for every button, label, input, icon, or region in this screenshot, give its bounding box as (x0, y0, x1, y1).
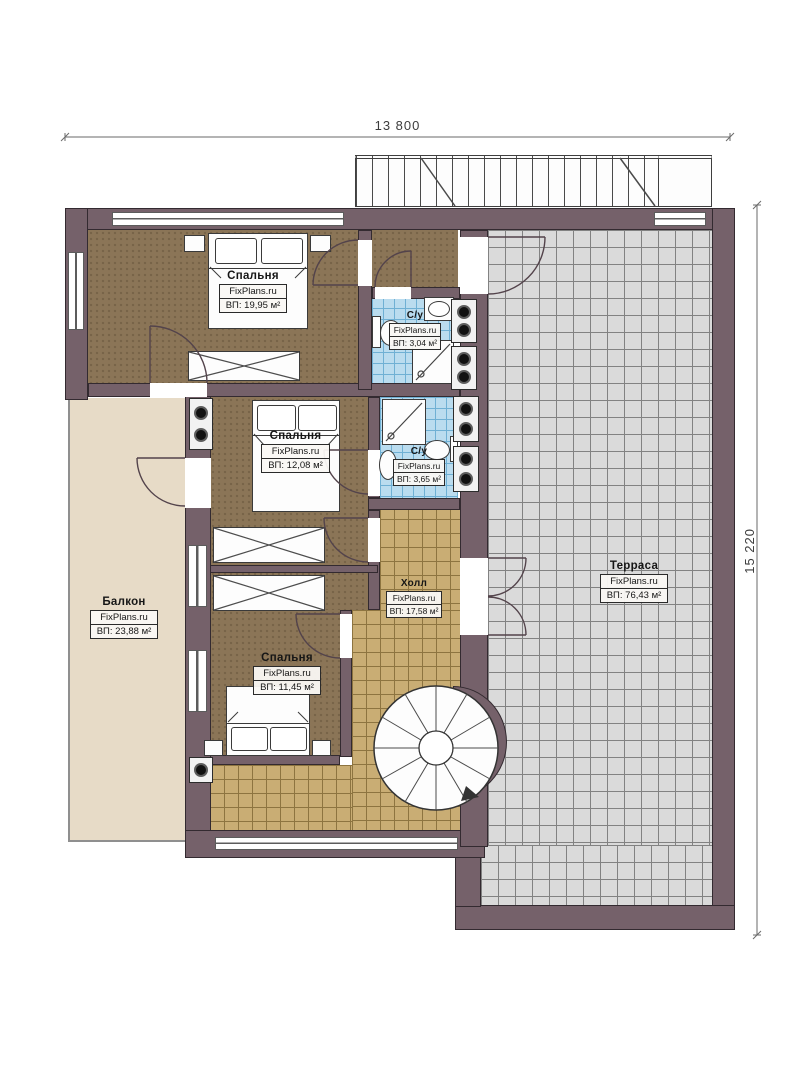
wall-bedroom3-south (210, 755, 340, 765)
label-balcony: Балкон FixPlans.ru ВП: 23,88 м² (70, 596, 178, 639)
room-area: ВП: 3,04 м² (390, 337, 440, 349)
bed-3 (226, 686, 310, 756)
pillow (298, 405, 337, 431)
hall-floor-main (352, 610, 460, 832)
nightstand (184, 235, 205, 252)
room-area: ВП: 23,88 м² (91, 625, 158, 638)
door-opening-bathroom2 (368, 450, 380, 496)
blanket-line (227, 723, 309, 724)
vent-circles (451, 299, 477, 343)
wardrobe-bedroom1 (188, 351, 300, 381)
vent-dot (194, 428, 208, 442)
pillow (261, 238, 303, 264)
wall-wardrobe-divider (210, 565, 378, 573)
pillow (270, 727, 307, 751)
pergola-end (658, 155, 712, 207)
vent-circles (189, 398, 213, 450)
room-name: Балкон (70, 596, 178, 608)
blanket-line (209, 268, 307, 269)
nightstand (204, 740, 223, 756)
room-area: ВП: 19,95 м² (220, 299, 287, 312)
pergola-slats (355, 155, 660, 207)
pillow (257, 405, 296, 431)
label-bedroom-2: Спальня FixPlans.ru ВП: 12,08 м² (238, 430, 353, 473)
room-name: Спальня (238, 430, 353, 442)
wardrobe-bedroom3 (213, 575, 325, 611)
label-bedroom-3: Спальня FixPlans.ru ВП: 11,45 м² (232, 652, 342, 695)
label-terrace: Терраса FixPlans.ru ВП: 76,43 м² (578, 560, 690, 603)
door-opening-bathroom1 (375, 287, 411, 299)
door-opening-terrace-french (460, 558, 488, 635)
window-left-wall (68, 252, 84, 330)
room-site: FixPlans.ru (387, 592, 442, 605)
room-label-box: FixPlans.ru ВП: 3,04 м² (389, 323, 441, 350)
room-site: FixPlans.ru (601, 575, 668, 589)
vent-circles (189, 757, 213, 783)
vent-dot (459, 402, 473, 416)
room-site: FixPlans.ru (91, 611, 158, 625)
room-name: С/у (378, 310, 452, 321)
room-site: FixPlans.ru (254, 667, 320, 681)
door-opening-bedroom2 (368, 518, 380, 562)
door-opening-balcony (185, 458, 211, 508)
dimension-top: 13 800 (65, 118, 730, 133)
window-bottom-band (215, 837, 458, 850)
floor-plan: 13 800 15 220 (0, 0, 792, 1080)
label-bathroom-2: С/у FixPlans.ru ВП: 3,65 м² (380, 446, 458, 487)
room-area: ВП: 11,45 м² (254, 681, 320, 694)
terrace-floor-bottom (481, 845, 712, 905)
nightstand (312, 740, 331, 756)
label-bedroom-1: Спальня FixPlans.ru ВП: 19,95 м² (196, 270, 310, 313)
vent-circles (451, 346, 477, 390)
room-name: Спальня (196, 270, 310, 282)
room-name: Спальня (232, 652, 342, 664)
room-site: FixPlans.ru (220, 285, 287, 299)
vestibule-floor (372, 230, 458, 290)
room-label-box: FixPlans.ru ВП: 17,58 м² (386, 591, 443, 618)
wall-terrace-bottom (455, 905, 735, 930)
door-opening-terrace-top (460, 237, 488, 294)
room-name: Терраса (578, 560, 690, 572)
door-opening-vestibule (358, 240, 372, 286)
room-label-box: FixPlans.ru ВП: 12,08 м² (261, 444, 330, 473)
wall-bathroom2-south (368, 498, 460, 510)
vent-dot (459, 472, 473, 486)
room-label-box: FixPlans.ru ВП: 3,65 м² (393, 459, 445, 486)
pillow (231, 727, 268, 751)
window-terrace-top (654, 212, 706, 226)
room-site: FixPlans.ru (390, 324, 440, 337)
hall-floor-lower (210, 765, 352, 832)
window-balcony-1 (188, 545, 207, 607)
label-hall: Холл FixPlans.ru ВП: 17,58 м² (368, 578, 460, 619)
room-name: Холл (368, 578, 460, 589)
room-area: ВП: 17,58 м² (387, 605, 442, 617)
vent-dot (457, 352, 471, 366)
room-name: С/у (380, 446, 458, 457)
vent-dot (194, 406, 208, 420)
room-label-box: FixPlans.ru ВП: 23,88 м² (90, 610, 159, 639)
wardrobe-bedroom2 (213, 527, 325, 563)
room-site: FixPlans.ru (262, 445, 329, 459)
vent-dot (457, 305, 471, 319)
pillow (215, 238, 257, 264)
dimension-right: 15 220 (742, 528, 757, 574)
label-bathroom-1: С/у FixPlans.ru ВП: 3,04 м² (378, 310, 452, 351)
vent-circles (453, 396, 479, 442)
shower-corner-2 (382, 399, 426, 445)
room-label-box: FixPlans.ru ВП: 11,45 м² (253, 666, 321, 695)
vent-dot (457, 370, 471, 384)
vent-dot (459, 452, 473, 466)
room-label-box: FixPlans.ru ВП: 76,43 м² (600, 574, 669, 603)
room-area: ВП: 12,08 м² (262, 459, 329, 472)
room-site: FixPlans.ru (394, 460, 444, 473)
vent-dot (457, 323, 471, 337)
wall-terrace-right (712, 208, 735, 930)
room-area: ВП: 3,65 м² (394, 473, 444, 485)
vent-dot (194, 763, 208, 777)
vent-dot (459, 422, 473, 436)
window-balcony-2 (188, 650, 207, 712)
nightstand (310, 235, 331, 252)
door-opening-bedroom1 (150, 383, 207, 397)
wall-bedroom1-south (88, 383, 460, 397)
window-bedroom1 (112, 212, 344, 226)
room-area: ВП: 76,43 м² (601, 589, 668, 602)
room-label-box: FixPlans.ru ВП: 19,95 м² (219, 284, 288, 313)
